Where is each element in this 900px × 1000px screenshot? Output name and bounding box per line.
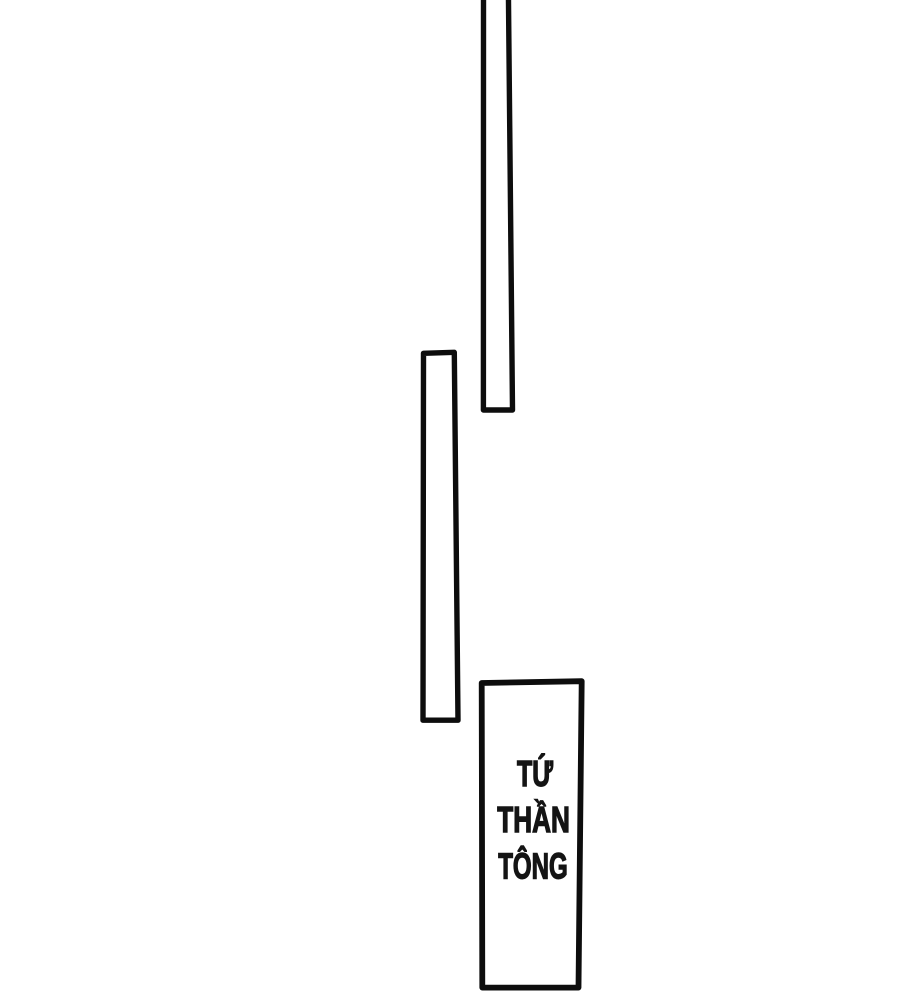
svg-text:THẦN: THẦN [497, 799, 570, 840]
svg-text:TÔNG: TÔNG [498, 845, 568, 887]
svg-text:TỨ: TỨ [517, 752, 553, 794]
